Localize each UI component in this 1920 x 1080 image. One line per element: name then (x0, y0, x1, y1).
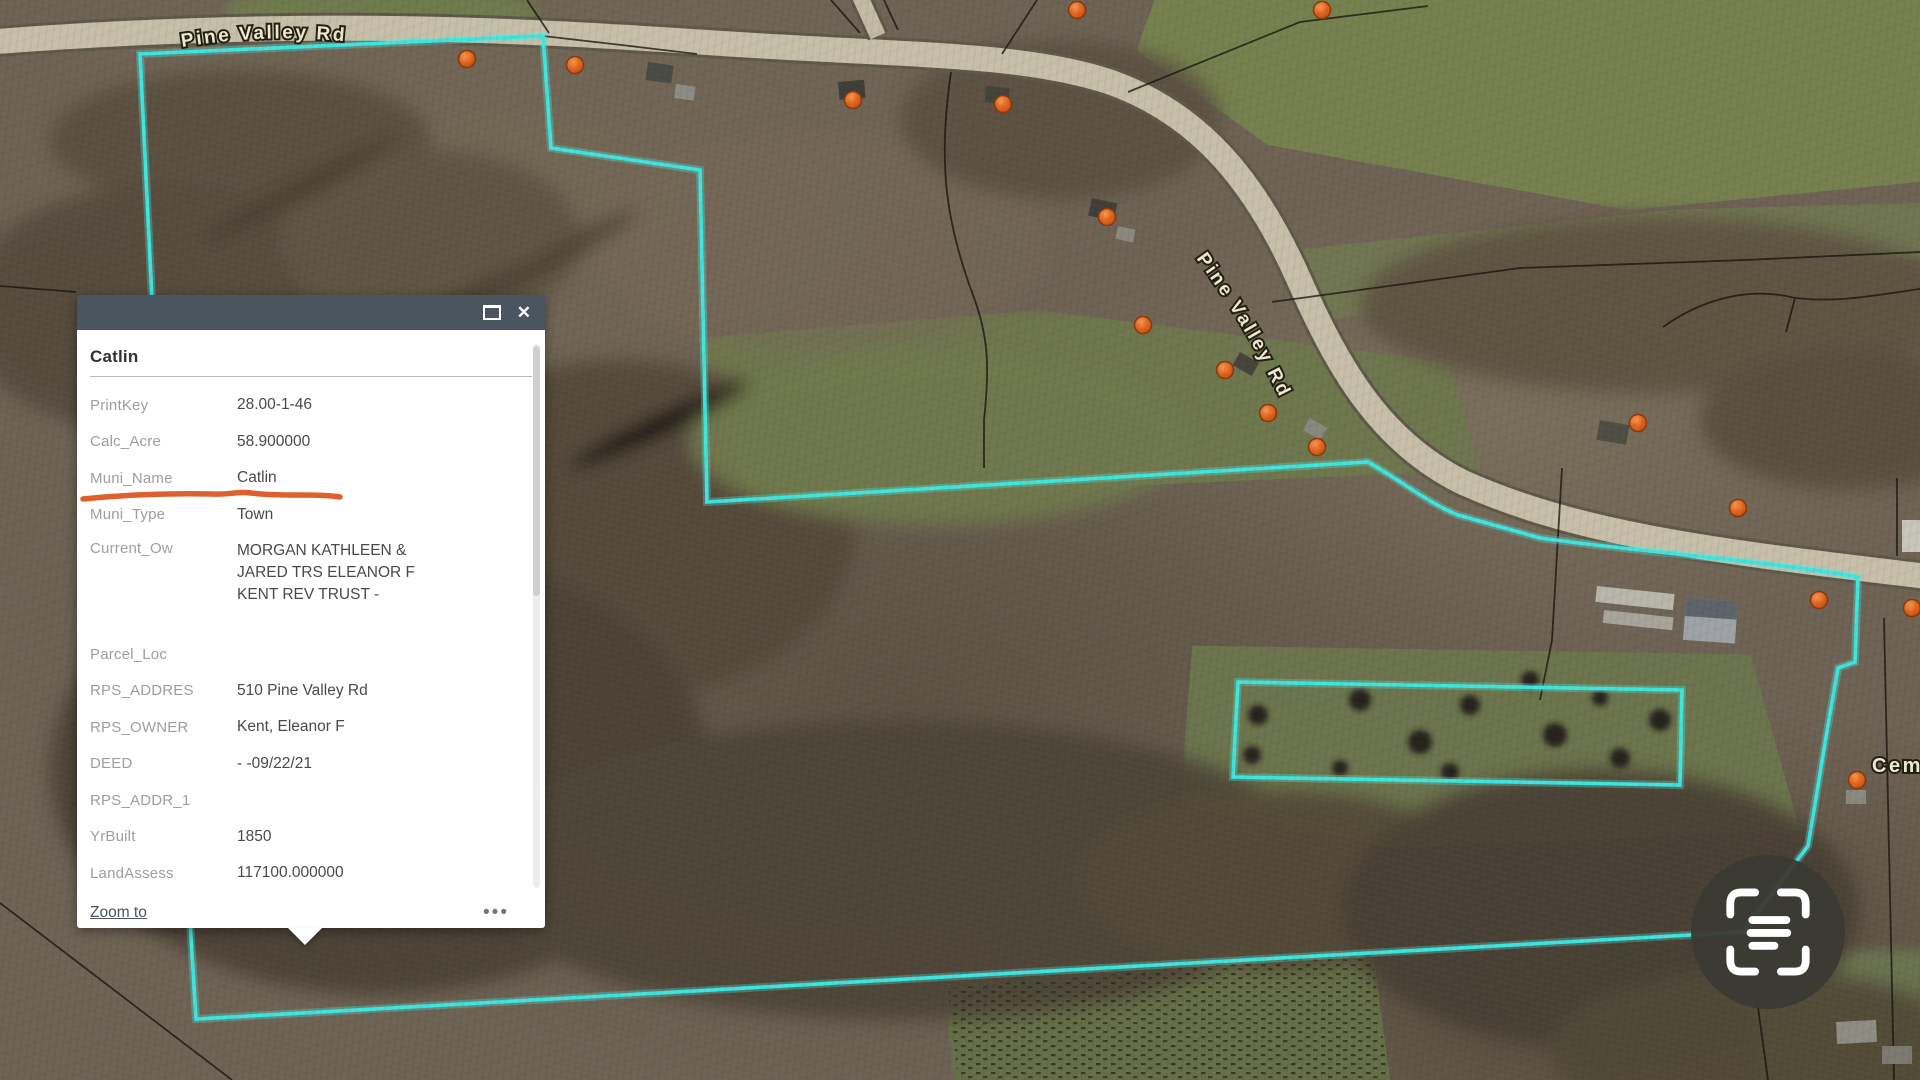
popup-header: ✕ (77, 295, 545, 330)
field-value: 510 Pine Valley Rd (237, 680, 368, 702)
field-row: Current_Ow MORGAN KATHLEEN & JARED TRS E… (90, 533, 532, 636)
zoom-to-link[interactable]: Zoom to (90, 904, 147, 922)
popup-title: Catlin (90, 347, 532, 367)
field-row: YrBuilt 1850 (90, 819, 532, 856)
field-row: Muni_Type Town (90, 497, 532, 534)
popup-body: Catlin PrintKey 28.00-1-46 Calc_Acre 58.… (77, 330, 545, 928)
scan-text-icon (1722, 886, 1814, 978)
dock-popup-icon[interactable] (483, 305, 501, 320)
field-label: Calc_Acre (90, 433, 237, 450)
field-label: YrBuilt (90, 828, 237, 845)
field-label: Muni_Name (90, 470, 237, 487)
field-value: 117100.000000 (237, 862, 344, 884)
field-label: PrintKey (90, 397, 237, 414)
field-row: RPS_ADDR_1 (90, 782, 532, 819)
more-options-icon[interactable]: ••• (483, 908, 509, 918)
popup-scrollbar[interactable] (533, 344, 540, 888)
field-row: Calc_Acre 58.900000 (90, 424, 532, 461)
field-row: PrintKey 28.00-1-46 (90, 387, 532, 424)
field-value: Kent, Eleanor F (237, 716, 345, 738)
field-row: Muni_Name Catlin (90, 460, 532, 497)
scan-text-button[interactable] (1691, 855, 1845, 1009)
field-label: Parcel_Loc (90, 646, 237, 663)
map-canvas[interactable]: Pine Valley Rd Pine Valley Rd Cem ✕ Catl… (0, 0, 1920, 1080)
field-row: RPS_OWNER Kent, Eleanor F (90, 709, 532, 746)
field-label: Current_Ow (90, 540, 237, 557)
attribute-table: PrintKey 28.00-1-46 Calc_Acre 58.900000 … (90, 387, 532, 892)
field-value: Town (237, 504, 273, 526)
field-label: RPS_ADDRES (90, 682, 237, 699)
popup-footer: Zoom to ••• (90, 904, 509, 922)
field-label: LandAssess (90, 865, 237, 882)
field-label: DEED (90, 755, 237, 772)
field-row: Parcel_Loc (90, 636, 532, 673)
feature-popup: ✕ Catlin PrintKey 28.00-1-46 Calc_Acre 5… (77, 295, 545, 928)
popup-pointer (288, 928, 322, 945)
cemetery-label: Cem (1872, 755, 1920, 777)
field-value: - -09/22/21 (237, 753, 312, 775)
field-row: RPS_ADDRES 510 Pine Valley Rd (90, 673, 532, 710)
field-value: Catlin (237, 467, 277, 489)
field-value: 1850 (237, 826, 271, 848)
field-value: 58.900000 (237, 431, 310, 453)
field-value: MORGAN KATHLEEN & JARED TRS ELEANOR F KE… (237, 540, 442, 606)
field-label: RPS_OWNER (90, 719, 237, 736)
field-row: DEED - -09/22/21 (90, 746, 532, 783)
field-value: 28.00-1-46 (237, 394, 312, 416)
field-label: Muni_Type (90, 506, 237, 523)
field-label: RPS_ADDR_1 (90, 792, 237, 809)
close-icon[interactable]: ✕ (517, 304, 531, 321)
field-row: LandAssess 117100.000000 (90, 855, 532, 892)
title-divider (90, 376, 532, 377)
